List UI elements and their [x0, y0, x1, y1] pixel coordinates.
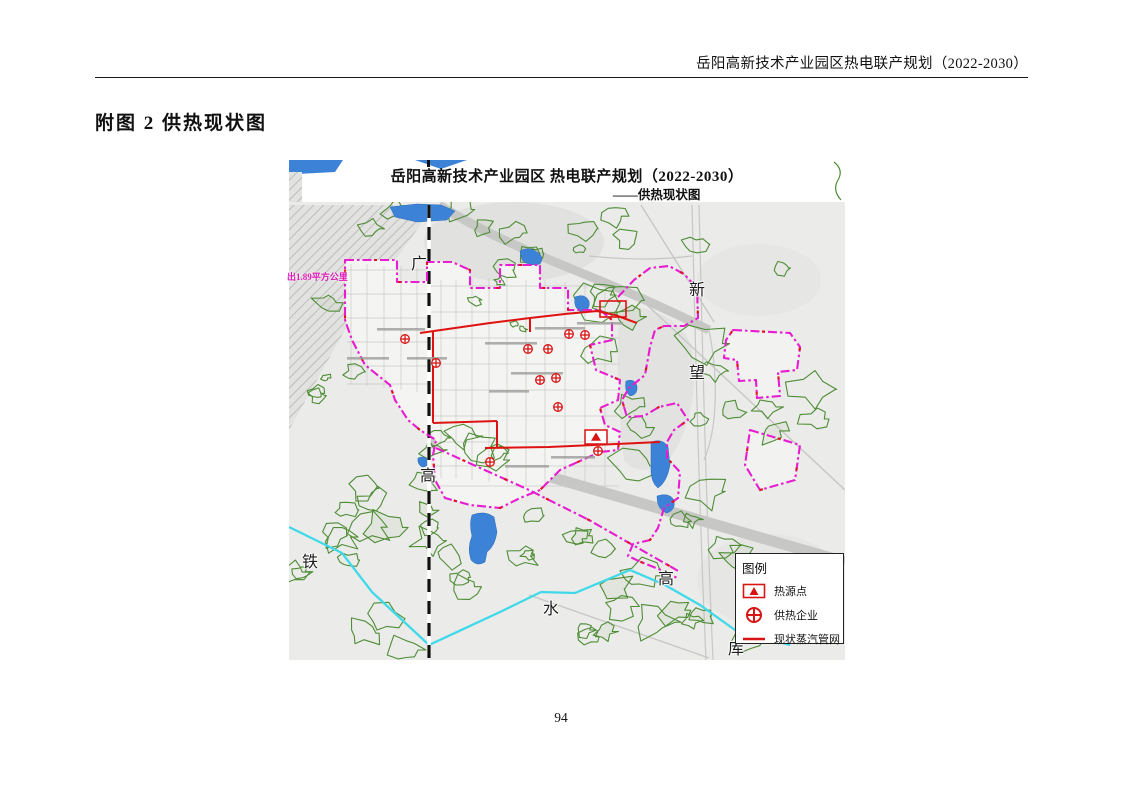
legend-row-heat-source: 热源点: [742, 579, 837, 603]
page-number: 94: [0, 710, 1122, 726]
heat-source-icon: [742, 583, 766, 599]
railway-label-gao: 高: [420, 462, 436, 486]
document-page: 岳阳高新技术产业园区热电联产规划（2022-2030） 附图 2 供热现状图: [0, 0, 1122, 793]
reservoir-label-shui: 水: [543, 595, 559, 619]
legend-label-heating-enterprise: 供热企业: [774, 607, 818, 623]
reservoir-label-tie: 铁: [302, 548, 318, 572]
header-divider: [95, 77, 1028, 78]
map-title: 岳阳高新技术产业园区 热电联产规划（2022-2030）: [289, 165, 845, 186]
legend-label-heat-source: 热源点: [774, 583, 807, 599]
railway-label-guang: 广: [411, 250, 427, 274]
document-header: 岳阳高新技术产业园区热电联产规划（2022-2030）: [696, 52, 1028, 73]
legend-title: 图例: [742, 558, 837, 577]
legend-row-steam-pipeline: 现状蒸汽管网: [742, 627, 837, 651]
heating-status-map: 岳阳高新技术产业园区 热电联产规划（2022-2030） ——供热现状图 出1.…: [289, 160, 845, 660]
road-label-xin: 新: [689, 276, 705, 300]
heating-enterprise-icon: [742, 606, 766, 624]
road-label-wang: 望: [689, 359, 705, 383]
legend-label-steam-pipeline: 现状蒸汽管网: [774, 631, 840, 647]
road-label-gao-right: 高: [658, 565, 674, 589]
figure-title: 附图 2 供热现状图: [95, 108, 267, 135]
area-note: 出1.89平方公里: [287, 270, 348, 283]
steam-pipeline-icon: [742, 635, 766, 643]
map-legend: 图例 热源点 供热企业 现状蒸汽管网: [735, 553, 844, 644]
map-subtitle: ——供热现状图: [289, 184, 700, 203]
legend-row-heating-enterprise: 供热企业: [742, 603, 837, 627]
